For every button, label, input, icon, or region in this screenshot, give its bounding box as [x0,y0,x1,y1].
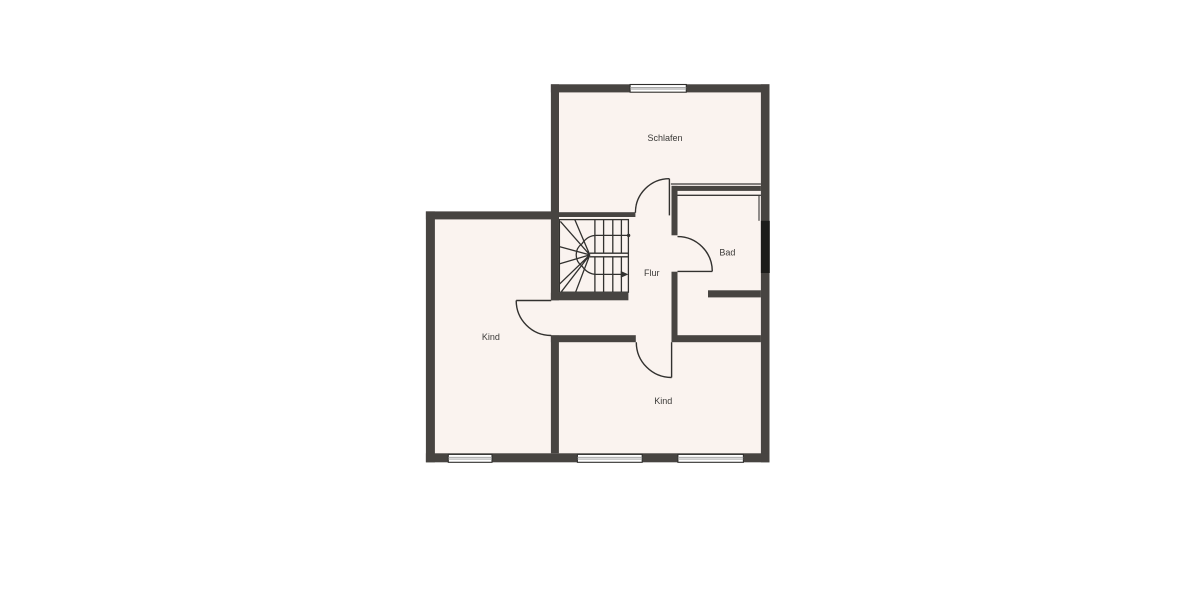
svg-text:Kind: Kind [654,396,672,406]
svg-text:Flur: Flur [644,268,660,278]
svg-text:Schlafen: Schlafen [647,133,682,143]
svg-text:Kind: Kind [482,332,500,342]
svg-text:Bad: Bad [719,248,735,258]
